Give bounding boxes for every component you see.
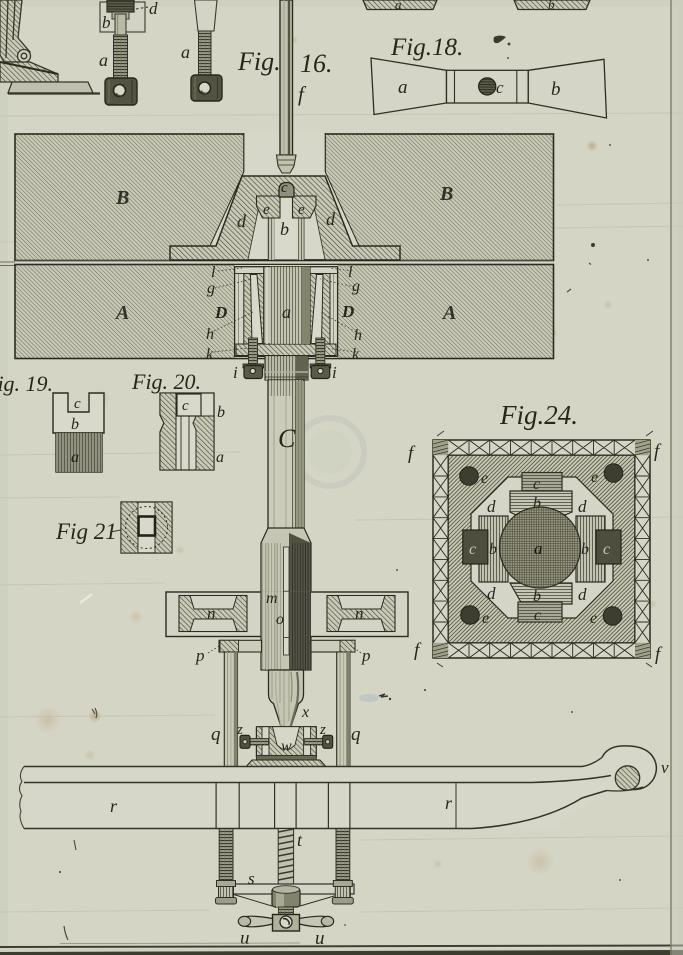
svg-text:c: c	[74, 396, 81, 412]
svg-text:h: h	[354, 327, 362, 344]
svg-text:w: w	[281, 738, 292, 755]
svg-text:e: e	[481, 470, 488, 487]
svg-text:A: A	[114, 302, 129, 324]
svg-text:o: o	[276, 611, 284, 628]
svg-text:b: b	[102, 13, 111, 32]
svg-text:n: n	[355, 604, 364, 623]
svg-text:q: q	[211, 724, 221, 745]
svg-text:g: g	[207, 280, 215, 297]
svg-text:16.: 16.	[300, 49, 333, 78]
svg-text:h: h	[206, 326, 214, 343]
svg-text:e: e	[482, 610, 489, 627]
svg-text:d: d	[578, 497, 587, 516]
svg-text:p: p	[195, 646, 205, 665]
svg-text:a: a	[216, 449, 224, 466]
svg-text:b: b	[280, 219, 289, 239]
svg-text:z: z	[236, 722, 243, 738]
svg-text:a: a	[99, 50, 108, 70]
svg-text:c: c	[603, 541, 610, 558]
svg-text:b: b	[533, 588, 541, 605]
svg-text:r: r	[110, 796, 118, 816]
svg-text:z: z	[319, 722, 326, 738]
svg-text:b: b	[71, 416, 79, 433]
svg-text:p: p	[361, 646, 371, 665]
svg-text:k: k	[206, 346, 214, 363]
svg-text:C: C	[278, 424, 296, 453]
svg-text:Fig. 20.: Fig. 20.	[131, 369, 201, 394]
svg-text:D: D	[214, 303, 227, 322]
svg-text:Fig.18.: Fig.18.	[390, 34, 463, 61]
svg-text:k: k	[352, 346, 360, 363]
svg-text:d: d	[149, 0, 158, 18]
svg-text:l: l	[211, 264, 216, 281]
svg-text:b: b	[548, 0, 555, 12]
svg-text:Fig 21: Fig 21	[55, 519, 117, 544]
svg-text:c: c	[533, 476, 540, 493]
svg-text:a: a	[181, 42, 190, 62]
svg-text:d: d	[487, 584, 496, 603]
svg-text:a: a	[395, 0, 402, 12]
svg-text:a: a	[71, 449, 79, 466]
svg-text:b: b	[551, 79, 561, 100]
svg-text:e: e	[591, 469, 598, 486]
svg-text:e: e	[263, 202, 270, 218]
svg-text:c: c	[534, 607, 541, 624]
svg-text:c: c	[281, 180, 288, 196]
svg-text:A: A	[441, 302, 456, 324]
svg-text:B: B	[115, 187, 129, 209]
svg-text:m: m	[266, 590, 278, 607]
svg-text:c: c	[469, 541, 476, 558]
svg-text:e: e	[590, 610, 597, 627]
svg-text:n: n	[207, 604, 216, 623]
svg-text:Fig.: Fig.	[237, 47, 281, 76]
svg-text:B: B	[439, 183, 453, 205]
svg-text:a: a	[398, 77, 408, 98]
svg-text:e: e	[298, 202, 305, 218]
svg-text:b: b	[217, 404, 225, 421]
svg-text:d: d	[578, 585, 587, 604]
svg-text:x: x	[301, 704, 309, 721]
svg-text:d: d	[326, 209, 336, 229]
svg-text:b: b	[533, 495, 541, 512]
svg-text:Fig.24.: Fig.24.	[499, 400, 578, 430]
svg-text:D: D	[341, 302, 354, 321]
svg-text:i: i	[332, 363, 337, 382]
svg-text:q: q	[351, 724, 361, 745]
svg-text:i: i	[233, 363, 238, 382]
svg-text:b: b	[581, 541, 589, 558]
svg-text:v: v	[661, 758, 669, 777]
svg-text:r: r	[445, 793, 453, 813]
svg-text:b: b	[489, 541, 497, 558]
svg-text:a: a	[282, 302, 291, 322]
svg-text:d: d	[237, 211, 247, 231]
svg-text:Fig. 19.: Fig. 19.	[0, 371, 53, 396]
svg-text:s: s	[248, 869, 255, 888]
svg-text:d: d	[487, 497, 496, 516]
svg-text:c: c	[182, 398, 189, 414]
svg-text:c: c	[496, 78, 504, 97]
svg-text:a: a	[534, 539, 543, 558]
